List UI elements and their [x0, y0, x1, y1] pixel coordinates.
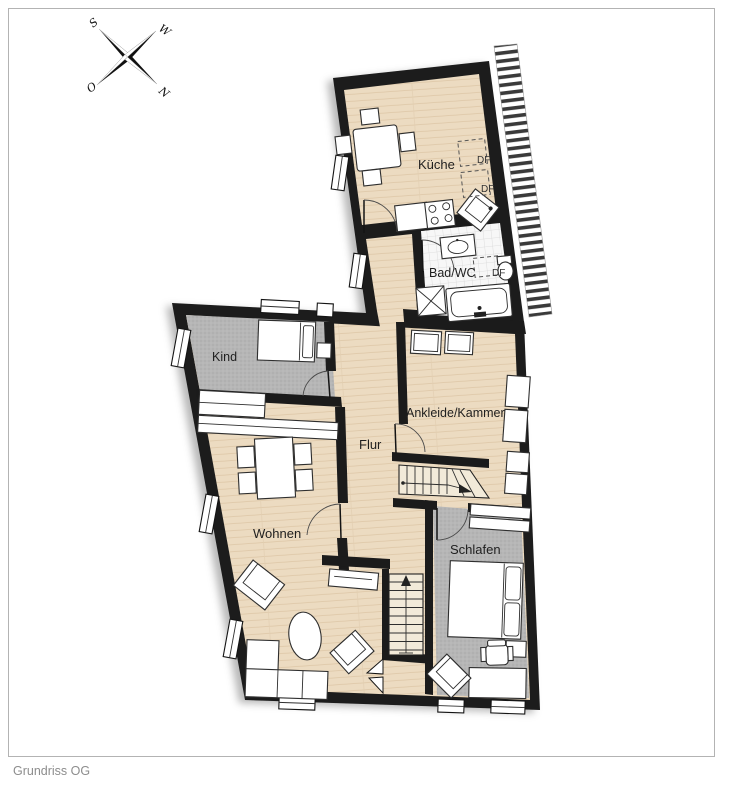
label-ankleide: Ankleide/Kammer — [406, 406, 505, 420]
plan-caption: Grundriss OG — [13, 764, 90, 778]
kitchen-counter — [395, 202, 430, 231]
compass-north: N — [155, 84, 172, 101]
label-wohnen: Wohnen — [253, 526, 301, 541]
staircase-lower — [389, 574, 423, 655]
kind-nightstand — [317, 343, 332, 358]
kitchen-chair — [335, 135, 352, 155]
tv-board — [328, 569, 378, 590]
kitchen-dining-table — [353, 125, 401, 172]
label-df2: DF — [481, 184, 494, 195]
washbasin — [440, 234, 476, 258]
label-kueche: Küche — [418, 157, 455, 172]
compass-south: S — [87, 15, 101, 30]
ankleide-seat — [410, 330, 441, 355]
window — [438, 699, 464, 713]
compass-rose-icon: S W O N — [84, 15, 174, 101]
desk — [469, 668, 527, 699]
label-df1: DF — [477, 155, 490, 166]
ankleide-seat — [444, 331, 473, 354]
kind-bed — [257, 320, 315, 362]
label-kind: Kind — [212, 350, 237, 364]
window — [317, 303, 334, 317]
bathtub — [446, 283, 513, 321]
label-df3: DF — [492, 268, 505, 279]
kitchen-chair — [362, 169, 382, 186]
label-bad: Bad/WC — [429, 266, 476, 280]
window — [331, 155, 349, 190]
schlafen-bed — [448, 561, 524, 640]
kind-dresser — [198, 390, 265, 417]
shower — [416, 286, 446, 316]
window — [491, 700, 525, 714]
kitchen-chair — [360, 108, 380, 125]
floorplan-drawing: Küche Bad/WC Kind Ankleide/Kammer Flur W… — [0, 0, 731, 791]
floorplan-page: Küche Bad/WC Kind Ankleide/Kammer Flur W… — [0, 0, 731, 791]
label-schlafen: Schlafen — [450, 542, 501, 557]
stove — [425, 199, 456, 228]
compass-west: W — [156, 22, 174, 40]
label-flur: Flur — [359, 437, 382, 452]
window — [261, 300, 300, 315]
compass-east: O — [84, 80, 99, 96]
kitchen-chair — [399, 132, 416, 152]
